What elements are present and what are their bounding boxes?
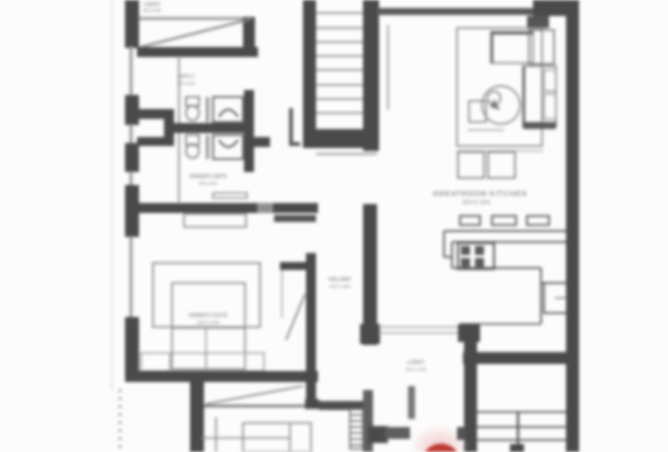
svg-text:OWNER'S BATH: OWNER'S BATH (189, 174, 227, 180)
svg-text:BATH 2: BATH 2 (177, 74, 194, 80)
svg-text:14'6 X 13'0: 14'6 X 13'0 (197, 320, 220, 325)
svg-text:6'0 X 6'8: 6'0 X 6'8 (406, 367, 426, 372)
svg-text:OWNER'S SUITE: OWNER'S SUITE (188, 313, 228, 319)
svg-text:9'6 X 8'0: 9'6 X 8'0 (199, 181, 217, 186)
svg-text:LOBBY: LOBBY (407, 360, 426, 366)
svg-text:GREATROOM KITCHEN: GREATROOM KITCHEN (433, 189, 527, 198)
svg-text:HALLWAY: HALLWAY (329, 277, 353, 283)
svg-text:4'0 X 12'6: 4'0 X 12'6 (330, 284, 351, 289)
svg-text:16'4 X 15'6: 16'4 X 15'6 (462, 200, 490, 206)
svg-text:6'0 X 5'0: 6'0 X 5'0 (143, 8, 161, 13)
